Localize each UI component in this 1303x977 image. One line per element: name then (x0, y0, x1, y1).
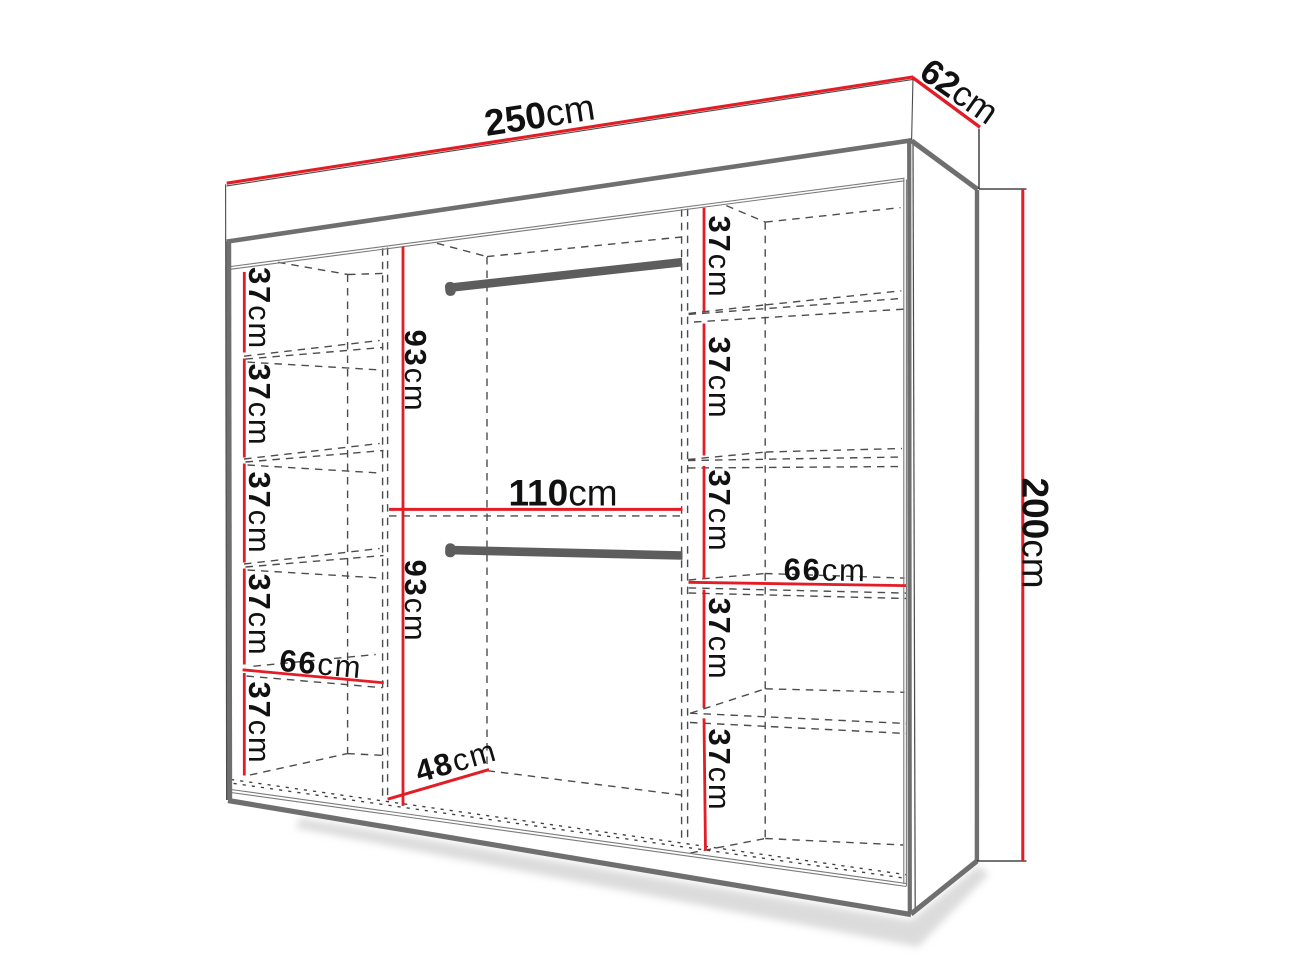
svg-text:37cm: 37cm (702, 728, 737, 811)
svg-text:37cm: 37cm (702, 469, 737, 552)
svg-text:37cm: 37cm (242, 363, 277, 446)
svg-text:110cm: 110cm (508, 473, 617, 514)
svg-text:37cm: 37cm (702, 215, 737, 298)
svg-text:37cm: 37cm (242, 267, 277, 350)
svg-text:66cm: 66cm (783, 552, 867, 588)
svg-text:93cm: 93cm (398, 559, 433, 642)
svg-text:37cm: 37cm (242, 573, 277, 656)
svg-text:37cm: 37cm (702, 597, 737, 680)
svg-text:37cm: 37cm (242, 471, 277, 554)
svg-text:93cm: 93cm (398, 329, 433, 412)
svg-text:37cm: 37cm (242, 681, 277, 764)
svg-text:200cm: 200cm (1014, 477, 1055, 588)
svg-text:37cm: 37cm (702, 336, 737, 419)
svg-text:66cm: 66cm (278, 643, 364, 685)
